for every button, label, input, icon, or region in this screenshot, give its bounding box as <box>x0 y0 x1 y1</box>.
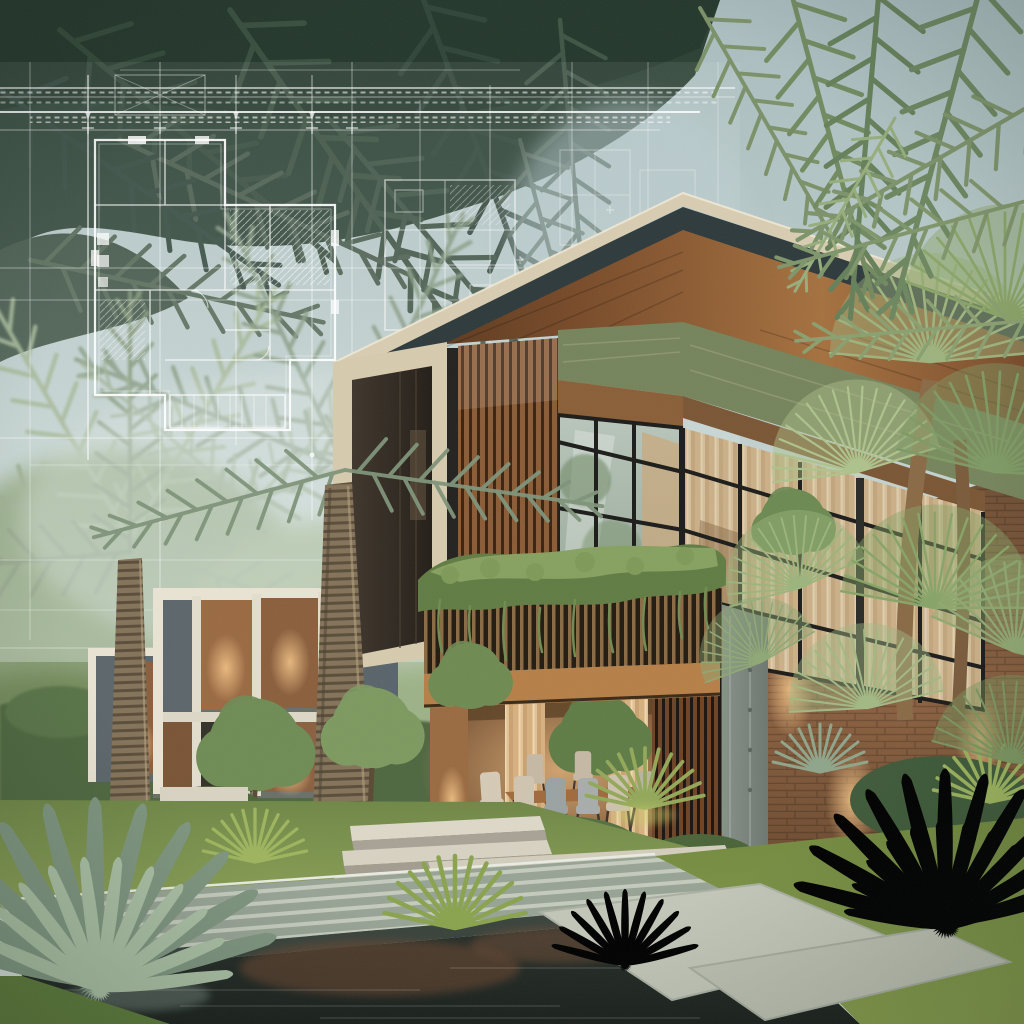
villa-render <box>0 0 1024 1024</box>
vignette <box>0 0 1024 1024</box>
render-canvas: Photorealistic dusk rendering of a two-s… <box>0 0 1024 1024</box>
